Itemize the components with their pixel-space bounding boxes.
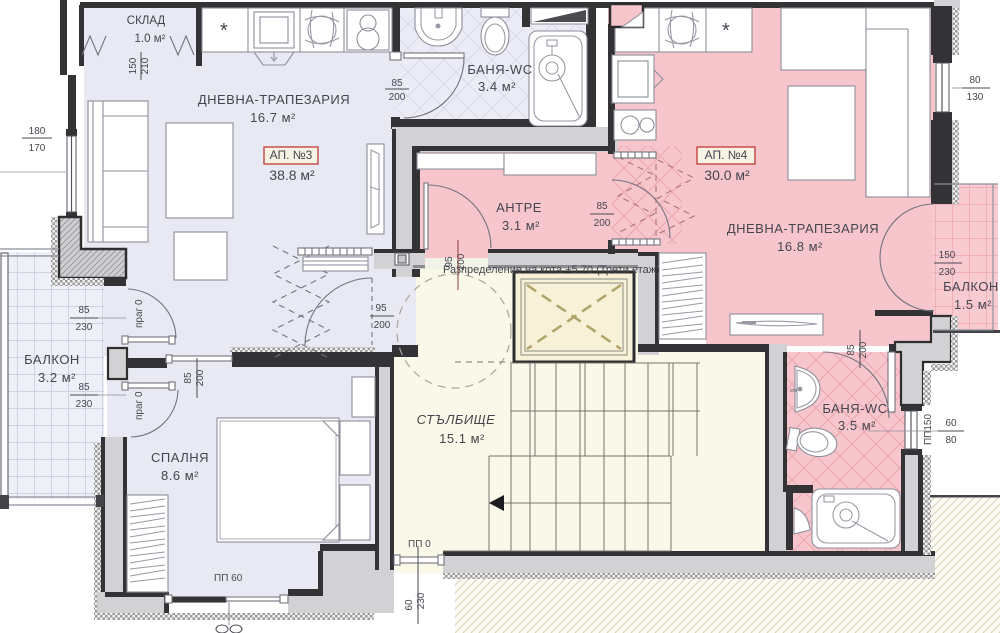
svg-text:3.2 м²: 3.2 м²	[38, 370, 76, 385]
svg-text:85: 85	[183, 372, 194, 384]
svg-text:30.0 м²: 30.0 м²	[704, 167, 750, 183]
svg-text:БАНЯ-WC: БАНЯ-WC	[467, 62, 532, 77]
svg-text:85: 85	[391, 78, 403, 89]
svg-text:ПП 0: ПП 0	[408, 539, 431, 550]
svg-text:16.8 м²: 16.8 м²	[777, 239, 823, 254]
svg-text:СТЪЛБИЩЕ: СТЪЛБИЩЕ	[417, 412, 496, 427]
svg-text:95: 95	[375, 303, 387, 314]
svg-text:80: 80	[969, 75, 981, 86]
svg-text:БАЛКОН: БАЛКОН	[943, 279, 999, 294]
svg-text:*: *	[722, 20, 730, 42]
svg-text:ПП 60: ПП 60	[214, 573, 243, 584]
svg-text:праг 0: праг 0	[134, 299, 145, 328]
svg-text:85: 85	[78, 305, 90, 316]
svg-text:БАЛКОН: БАЛКОН	[24, 352, 80, 367]
svg-text:170: 170	[29, 143, 46, 154]
svg-text:80: 80	[945, 435, 957, 446]
svg-text:230: 230	[76, 399, 93, 410]
svg-text:ПП150: ПП150	[923, 414, 934, 445]
svg-text:3.4 м²: 3.4 м²	[478, 79, 516, 94]
svg-text:200: 200	[389, 92, 406, 103]
svg-text:130: 130	[967, 92, 984, 103]
svg-text:Разпределение на кота +5.70 (Т: Разпределение на кота +5.70 (Трети етаж)	[443, 264, 660, 276]
svg-text:60: 60	[945, 418, 957, 429]
svg-text:16.7 м²: 16.7 м²	[250, 110, 296, 125]
svg-text:БАНЯ-WC: БАНЯ-WC	[822, 401, 887, 416]
svg-text:СКЛАД: СКЛАД	[127, 15, 166, 27]
svg-text:200: 200	[594, 218, 611, 229]
svg-text:230: 230	[939, 267, 956, 278]
svg-text:АП. №4: АП. №4	[705, 148, 748, 162]
svg-text:15.1 м²: 15.1 м²	[439, 431, 485, 446]
svg-text:85: 85	[846, 344, 857, 356]
svg-text:праг 0: праг 0	[134, 391, 145, 420]
svg-text:АНТРЕ: АНТРЕ	[496, 200, 542, 215]
svg-text:*: *	[220, 20, 228, 42]
svg-text:СПАЛНЯ: СПАЛНЯ	[151, 450, 209, 465]
svg-text:3.1 м²: 3.1 м²	[502, 218, 540, 233]
svg-text:1.0 м²: 1.0 м²	[135, 33, 166, 45]
svg-text:230: 230	[76, 322, 93, 333]
svg-text:8.6 м²: 8.6 м²	[161, 468, 199, 483]
svg-text:cro: cro	[790, 388, 797, 394]
svg-text:210: 210	[140, 57, 151, 74]
svg-text:38.8 м²: 38.8 м²	[269, 167, 315, 183]
svg-text:150: 150	[939, 250, 956, 261]
svg-text:60: 60	[404, 599, 415, 611]
svg-text:200: 200	[374, 320, 391, 331]
svg-text:1.5 м²: 1.5 м²	[954, 297, 992, 312]
svg-text:85: 85	[78, 382, 90, 393]
svg-text:ДНЕВНА-ТРАПЕЗАРИЯ: ДНЕВНА-ТРАПЕЗАРИЯ	[727, 221, 879, 236]
svg-text:150: 150	[128, 57, 139, 74]
svg-text:ДНЕВНА-ТРАПЕЗАРИЯ: ДНЕВНА-ТРАПЕЗАРИЯ	[198, 92, 350, 107]
svg-text:85: 85	[596, 201, 608, 212]
svg-text:180: 180	[29, 126, 46, 137]
svg-text:АП. №3: АП. №3	[270, 148, 313, 162]
